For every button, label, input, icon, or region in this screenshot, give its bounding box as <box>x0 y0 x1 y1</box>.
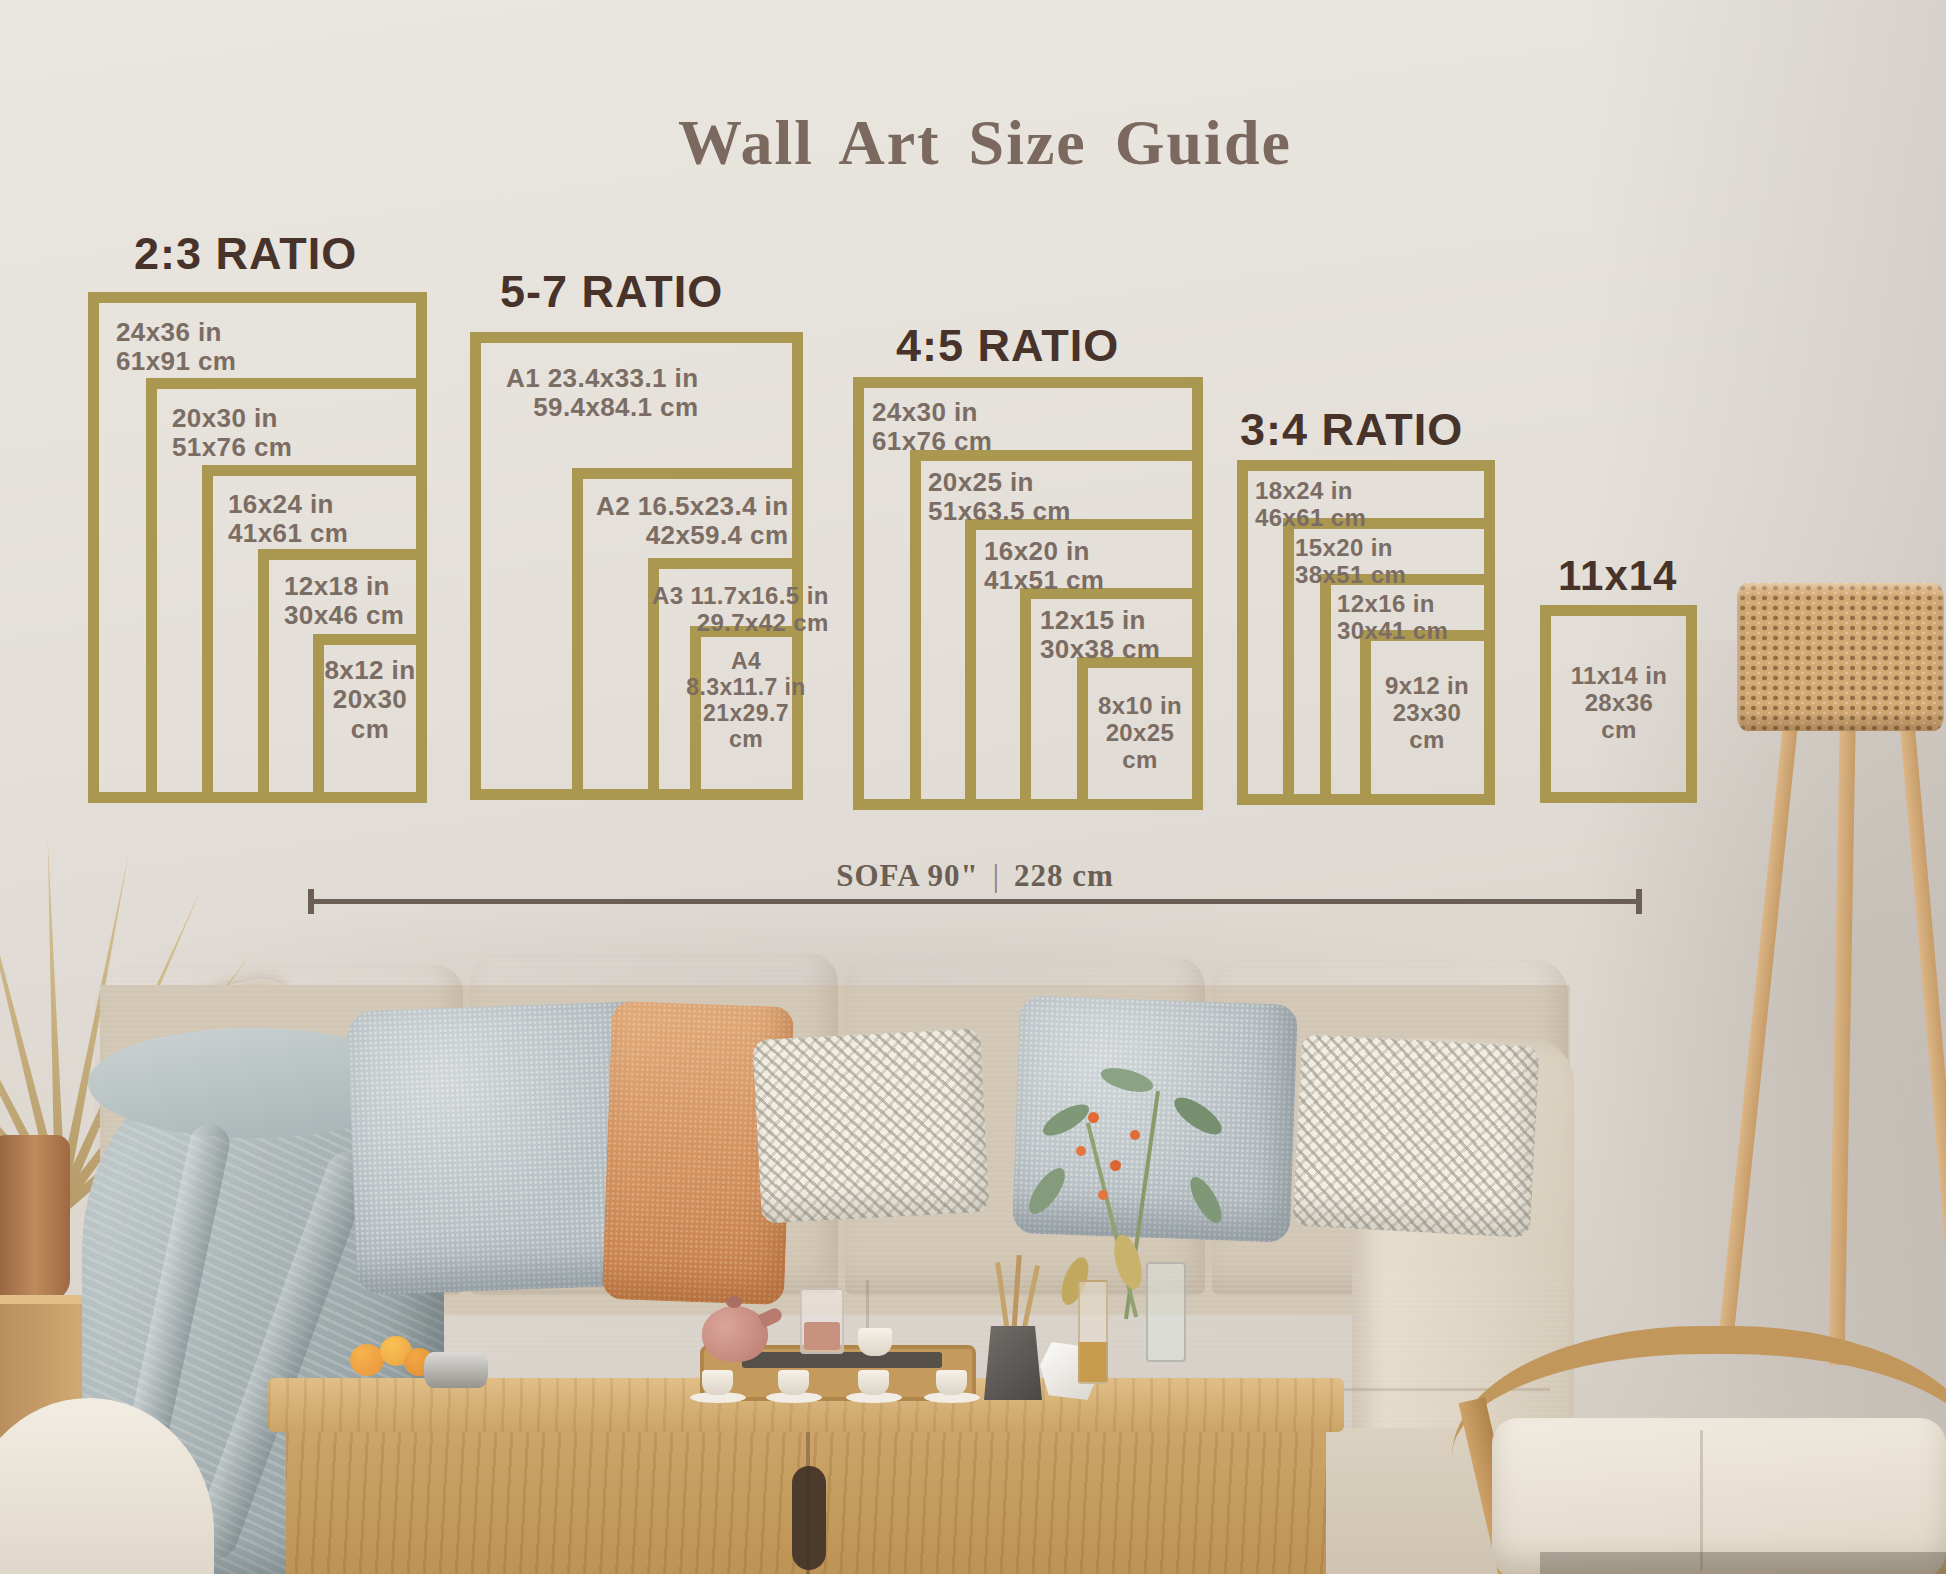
teacup <box>778 1370 809 1395</box>
teacup <box>702 1370 733 1395</box>
size-label-a1: A1 23.4x33.1 in 59.4x84.1 cm <box>506 364 698 423</box>
size-label-12x15: 12x15 in 30x38 cm <box>1040 606 1160 665</box>
pillow-chevron-left <box>752 1028 989 1224</box>
size-label-15x20: 15x20 in 38x51 cm <box>1295 534 1406 588</box>
teacup <box>858 1370 889 1395</box>
plant-vase-glass <box>1146 1262 1186 1362</box>
plant-leaf <box>1098 1063 1155 1096</box>
glass-container-contents <box>804 1322 840 1350</box>
size-label-16x24: 16x24 in 41x61 cm <box>228 490 348 549</box>
size-label-24x36: 24x36 in 61x91 cm <box>116 318 236 377</box>
size-label-12x18: 12x18 in 30x46 cm <box>284 572 404 631</box>
armchair-cushion <box>1492 1418 1946 1574</box>
section-heading: 5-7 RATIO <box>500 266 723 318</box>
size-label-a2: A2 16.5x23.4 in 42x59.4 cm <box>596 492 788 551</box>
plant-leaf <box>1184 1172 1227 1227</box>
section-heading: 11x14 <box>1558 552 1677 600</box>
size-label-20x30: 20x30 in 51x76 cm <box>172 404 292 463</box>
section-heading: 3:4 RATIO <box>1240 404 1463 456</box>
sofa-width-inches: SOFA 90" <box>836 858 979 893</box>
measure-tick-right <box>1636 889 1642 914</box>
size-label-16x20: 16x20 in 41x51 cm <box>984 537 1104 596</box>
teacup <box>936 1370 967 1395</box>
size-label-12x16: 12x16 in 30x41 cm <box>1337 590 1448 644</box>
plant-vase <box>0 1135 70 1300</box>
teacup <box>858 1328 892 1356</box>
teapot-lid <box>726 1296 742 1308</box>
hex-pot <box>984 1326 1042 1400</box>
plant-leaf <box>1169 1091 1227 1141</box>
size-label-8x10: 8x10 in 20x25 cm <box>1098 692 1182 773</box>
sofa-measure-text: SOFA 90"|228 cm <box>836 858 1114 894</box>
plant-leaf-dried <box>1109 1232 1147 1292</box>
measure-separator: | <box>979 858 1014 893</box>
berry <box>1088 1112 1099 1123</box>
lamp-shade <box>1737 583 1944 731</box>
pillow-chevron-right <box>1292 1034 1540 1238</box>
metal-canister <box>424 1352 488 1388</box>
size-label-8x12: 8x12 in 20x30 cm <box>325 656 416 744</box>
measure-line <box>310 899 1640 904</box>
page-title: Wall Art Size Guide <box>678 106 1292 180</box>
size-label-18x24: 18x24 in 46x61 cm <box>1255 477 1366 531</box>
armchair-cushion-crease <box>1700 1430 1703 1570</box>
armchair-shadow <box>1540 1552 1946 1574</box>
tray-mat <box>742 1352 942 1368</box>
gold-cylinder <box>1078 1280 1108 1384</box>
berry <box>1098 1190 1108 1200</box>
berry <box>1076 1146 1086 1156</box>
sofa-width-cm: 228 cm <box>1014 858 1114 893</box>
size-label-a4: A4 8.3x11.7 in 21x29.7 cm <box>686 648 806 752</box>
section-heading: 2:3 RATIO <box>134 228 357 280</box>
size-label-11x14: 11x14 in 28x36 cm <box>1571 662 1668 743</box>
berry <box>1130 1130 1140 1140</box>
berry <box>1110 1160 1121 1171</box>
fruit-orange <box>350 1344 384 1376</box>
size-label-a3: A3 11.7x16.5 in 29.7x42 cm <box>652 582 829 636</box>
plant-leaf <box>1023 1163 1072 1220</box>
wall-art-size-guide-poster: Wall Art Size Guide 2:3 RATIO 24x36 in 6… <box>0 0 1946 1574</box>
size-label-24x30: 24x30 in 61x76 cm <box>872 398 992 457</box>
size-label-20x25: 20x25 in 51x63.5 cm <box>928 468 1071 527</box>
measure-tick-left <box>308 889 314 914</box>
section-heading: 4:5 RATIO <box>896 320 1119 372</box>
size-label-9x12: 9x12 in 23x30 cm <box>1385 672 1469 753</box>
table-handle-line <box>806 1432 810 1574</box>
plant-leaf <box>1038 1098 1093 1141</box>
